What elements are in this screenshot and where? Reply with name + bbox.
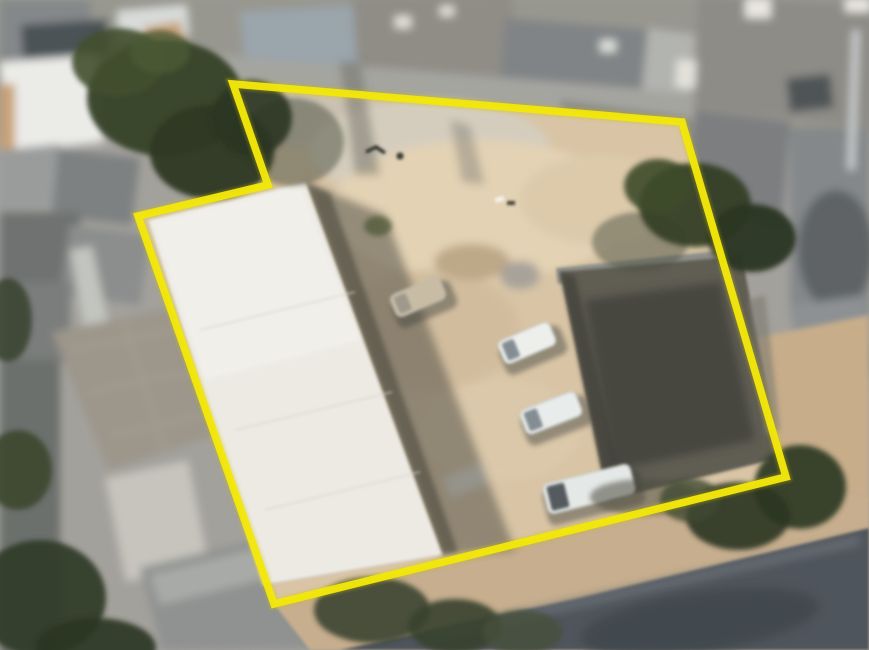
skylight bbox=[845, 0, 869, 12]
tree-canopy bbox=[364, 216, 392, 236]
skylight bbox=[395, 16, 411, 28]
skylight bbox=[440, 6, 454, 16]
tree-canopy bbox=[624, 159, 692, 213]
skylight bbox=[600, 40, 616, 52]
rooftop-dark bbox=[786, 74, 833, 112]
skylight bbox=[675, 59, 696, 88]
bird bbox=[397, 153, 404, 160]
tree-canopy bbox=[130, 30, 190, 74]
skylight bbox=[745, 0, 771, 18]
sand-dark-patch bbox=[434, 244, 510, 280]
satellite-image-viewport: Satellite aerial view of a property lot … bbox=[0, 0, 869, 650]
aerial-photo bbox=[0, 0, 869, 650]
sand-gray-patch bbox=[500, 261, 540, 289]
debris-dark bbox=[507, 201, 515, 205]
rooftop bbox=[692, 0, 869, 128]
